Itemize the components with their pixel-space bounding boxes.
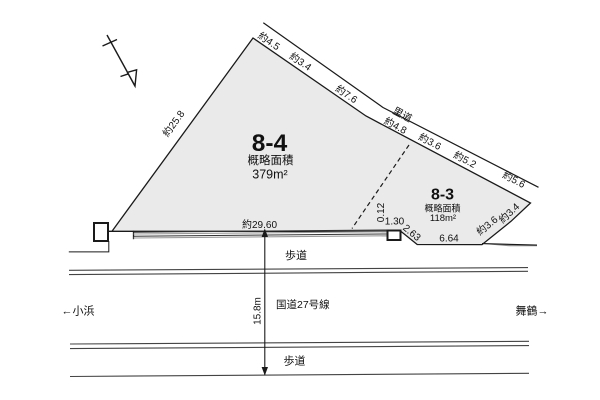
svg-text:←小浜: ←小浜 (62, 305, 95, 318)
svg-text:約29.60: 約29.60 (242, 218, 277, 231)
svg-text:6.64: 6.64 (439, 234, 459, 245)
svg-text:1.30: 1.30 (385, 217, 405, 228)
svg-text:15.8m: 15.8m (253, 297, 264, 325)
svg-text:国道27号線: 国道27号線 (276, 298, 330, 311)
svg-text:歩道: 歩道 (285, 248, 307, 262)
svg-text:概略面積: 概略面積 (248, 153, 294, 167)
svg-text:118m²: 118m² (430, 213, 456, 224)
svg-text:歩道: 歩道 (284, 354, 306, 368)
svg-text:8-4: 8-4 (252, 130, 288, 157)
svg-text:舞鶴→: 舞鶴→ (516, 304, 549, 318)
svg-text:8-3: 8-3 (431, 187, 454, 204)
svg-text:379m²: 379m² (252, 168, 287, 182)
